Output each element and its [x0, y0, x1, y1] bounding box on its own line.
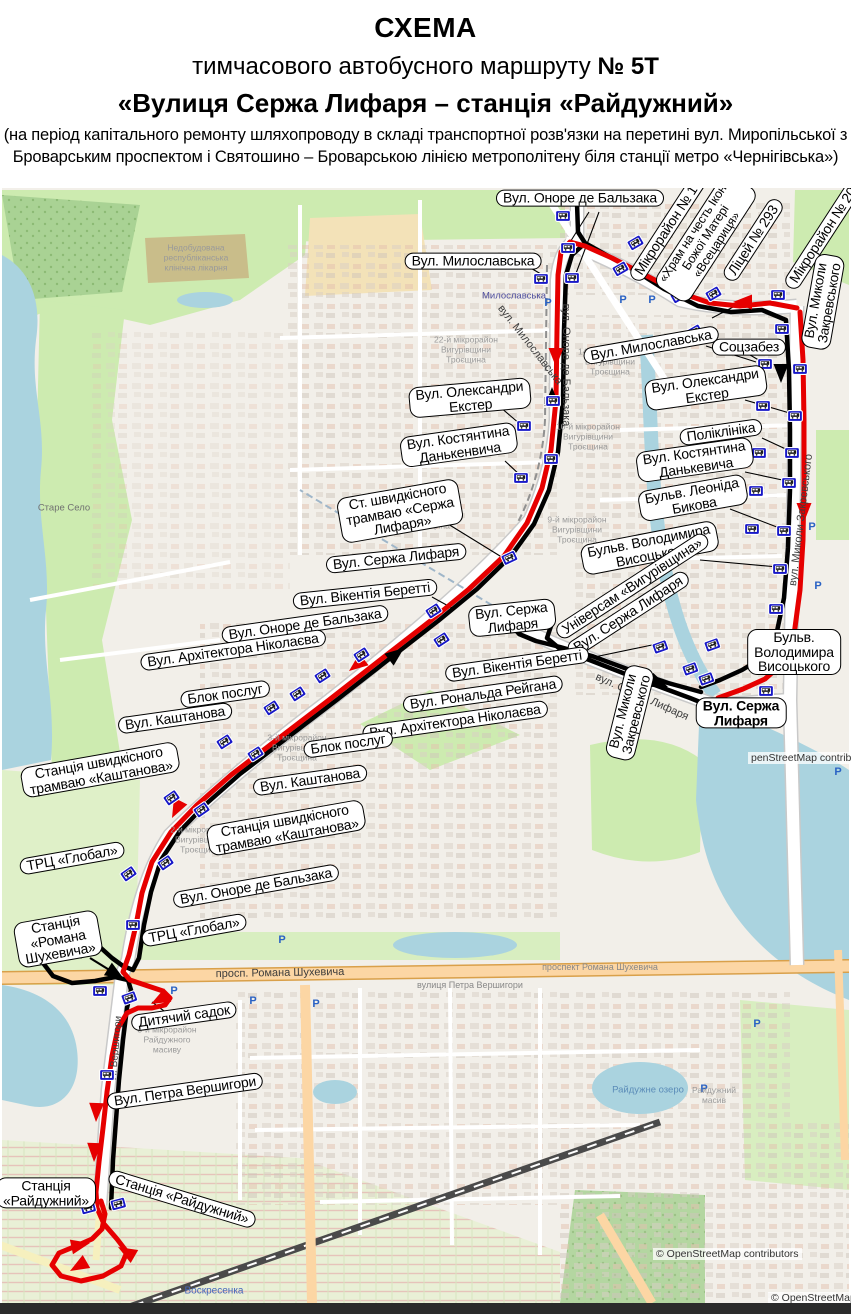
stop-balzaka-top: Вул. Оноре де Бальзака	[496, 190, 664, 207]
parking-icon: P	[312, 998, 319, 1010]
street-name-label: вул. Оноре де Бальзака	[560, 304, 572, 427]
subtitle-route-name: «Вулиця Сержа Лифаря – станція «Райдужни…	[0, 88, 851, 119]
bus-stop-icon	[770, 288, 786, 300]
district-label: Райдужниймасив	[692, 1086, 736, 1106]
street-name-label: Милославська	[482, 291, 546, 302]
stop-soczabez: Соцзабез	[712, 339, 786, 356]
map-canvas: PPPPPPPPPPPPPPвул. Оноре де Бальзакавул.…	[0, 0, 851, 1314]
route-arrow	[774, 364, 789, 383]
bus-stop-icon	[513, 471, 529, 483]
parking-icon: P	[170, 985, 177, 997]
street-name-label: Воскресенка	[185, 1286, 244, 1297]
bus-stop-icon	[774, 322, 790, 334]
bus-stop-icon	[516, 419, 532, 431]
bottom-border-bar	[0, 1303, 851, 1314]
bus-stop-icon	[758, 684, 774, 696]
district-label: 22-й мікрорайонВигурівщиниТроєщина	[434, 335, 498, 364]
route-arrow	[70, 1255, 90, 1271]
parking-icon: P	[648, 294, 655, 306]
bus-stop-icon	[784, 446, 800, 458]
leader-line	[700, 560, 778, 567]
bus-stop-icon	[545, 394, 561, 406]
stop-raiduzhnyi-left: Станція«Райдужний»	[0, 1177, 96, 1208]
bus-stop-icon	[99, 1068, 115, 1080]
stop-myloslavska-left: Вул. Милославська	[405, 253, 542, 270]
district-label: 3-й мікрорайонРайдужногомасиву	[137, 1025, 196, 1054]
subtitle-note: (на період капітального ремонту шляхопро…	[0, 125, 851, 169]
bus-stop-icon	[787, 409, 803, 421]
street-name-label: просп. Романа Шухевича	[216, 966, 345, 980]
bus-stop-icon	[755, 399, 771, 411]
street-name-label: Райдужне озеро	[612, 1085, 684, 1096]
stop-vysotskogo-2: Бульв.ВолодимираВисоцького	[747, 629, 841, 675]
parking-icon: P	[278, 934, 285, 946]
bus-stop-icon	[744, 522, 760, 534]
subtitle-route-number: тимчасового автобусного маршруту № 5Т	[0, 53, 851, 81]
page-title: СХЕМА	[0, 12, 851, 44]
bus-stop-icon	[92, 984, 108, 996]
bus-stop-icon	[768, 602, 784, 614]
street-name-label: вулиця Петра Вершигори	[417, 980, 523, 990]
district-label: 9-й мікрорайонВигурівщиниТроєщина	[547, 515, 606, 544]
parking-icon: P	[753, 1018, 760, 1030]
bus-stop-icon	[533, 272, 549, 284]
bus-stop-icon	[109, 1195, 128, 1211]
bus-stop-icon	[125, 918, 141, 930]
bus-stop-icon	[748, 484, 764, 496]
bus-stop-icon	[543, 452, 559, 464]
parking-icon: P	[808, 521, 815, 533]
parking-icon: P	[834, 766, 841, 778]
bus-stop-icon	[772, 562, 788, 574]
route-scheme-poster: СХЕМА тимчасового автобусного маршруту №…	[0, 0, 851, 1314]
osm-attribution-right: penStreetMap contributors	[748, 752, 851, 764]
district-label: 10-й мікрорайонВигурівщиниТроєщина	[556, 422, 620, 451]
parking-icon: P	[619, 294, 626, 306]
parking-icon: P	[814, 580, 821, 592]
district-label: Недобудованареспубліканськаклінічна ліка…	[164, 243, 229, 272]
bus-stop-icon	[776, 524, 792, 536]
bus-stop-icon	[792, 362, 808, 374]
bus-stop-icon	[564, 271, 580, 283]
street-name-label: проспект Романа Шухевича	[542, 962, 658, 972]
bus-stop-icon	[560, 241, 576, 253]
stop-lyfarya-terminus: Вул. СержаЛифаря	[696, 697, 787, 728]
bus-stop-icon	[555, 209, 571, 221]
street-name-label: Старе Село	[38, 503, 90, 514]
title-block: СХЕМА тимчасового автобусного маршруту №…	[0, 0, 851, 188]
parking-icon: P	[249, 995, 256, 1007]
osm-attribution: © OpenStreetMap contributors	[653, 1248, 802, 1260]
bus-stop-icon	[781, 476, 797, 488]
